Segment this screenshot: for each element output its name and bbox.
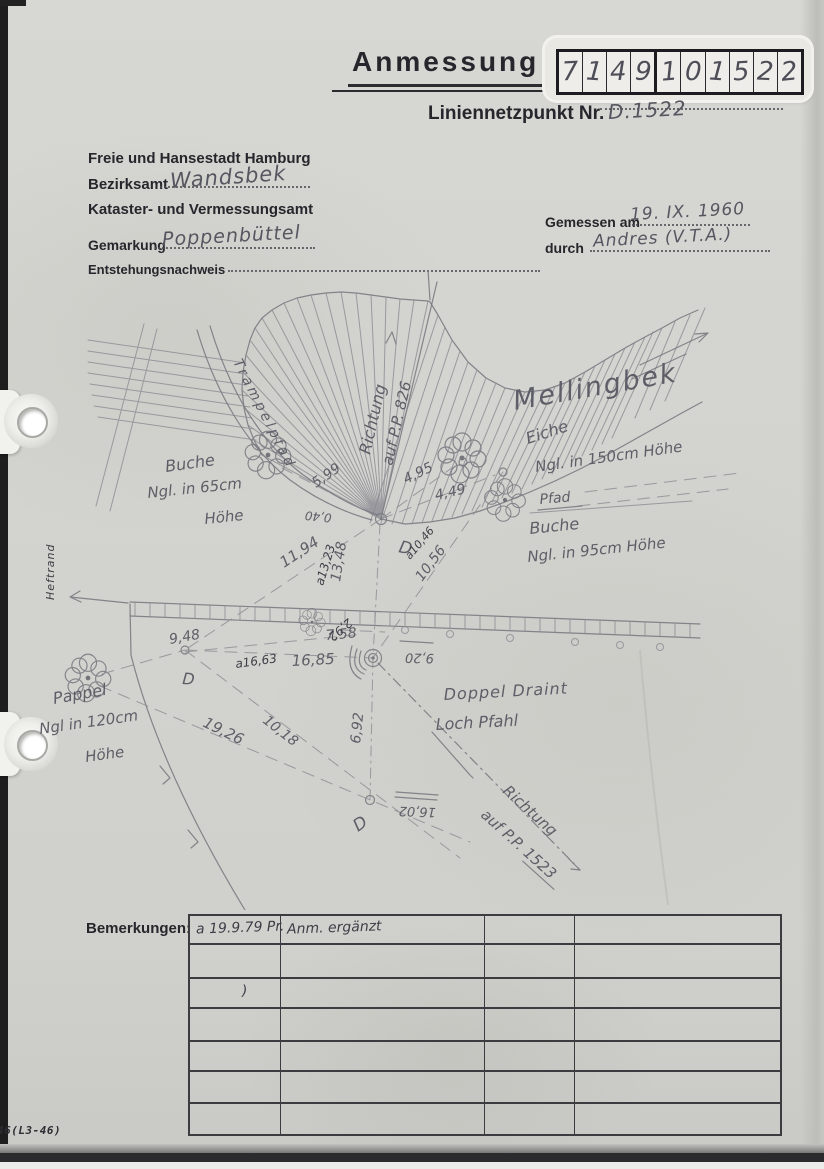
measure-1194: 11,94 [276, 533, 322, 571]
buche95-label-1: Buche [528, 514, 580, 538]
scan-edge-bottom [0, 1153, 824, 1162]
remarks-cell [575, 916, 780, 945]
remarks-cell [281, 1072, 485, 1104]
point-number-grid: 7149101522 [556, 49, 804, 95]
remarks-cell [575, 1072, 780, 1104]
point-number-cell: 7 [559, 52, 583, 92]
stream-band-hatching [370, 308, 705, 524]
scan-edge-right [800, 0, 824, 1169]
bezirksamt-label: Bezirksamt [88, 176, 168, 193]
buche65-label-3: Höhe [204, 506, 245, 528]
trampelpfad-label: Trampelpfad [229, 357, 298, 472]
measurement-lines [100, 467, 740, 889]
measure-692: 6,92 [348, 712, 367, 745]
remarks-cell [485, 1042, 575, 1072]
remarks-cell [190, 1009, 281, 1042]
eiche150-label-2: Ngl. in 150cm Höhe [534, 437, 683, 475]
gemessen-am-label: Gemessen am [545, 214, 640, 230]
heftrand-label: Heftrand [44, 544, 57, 600]
point-number-cell: 9 [631, 52, 657, 92]
remarks-cell [575, 945, 780, 979]
point-number-cell: 2 [754, 52, 778, 92]
remarks-cell: Anm. ergänzt [281, 916, 485, 945]
point-label-1: Doppel Draint [443, 679, 568, 704]
measure-1018: 10,18 [260, 713, 302, 750]
page-title: Anmessung [352, 46, 539, 78]
remarks-cell [281, 945, 485, 979]
form-code: 46(L3-46) [0, 1124, 61, 1137]
remarks-cell [575, 1009, 780, 1042]
remarks-entry: ) [242, 983, 248, 999]
measure-040: 0,40 [304, 508, 332, 525]
remarks-cell [281, 1009, 485, 1042]
remarks-cell [190, 1104, 281, 1134]
buche65-label-1: Buche [164, 450, 216, 476]
scan-edge-left [0, 0, 8, 1169]
buche65-label-2: Ngl. in 65cm [147, 474, 243, 502]
embankment-band [70, 591, 700, 910]
buche95-label-2: Ngl. in 95cm Höhe [527, 534, 667, 566]
remarks-cell [575, 1042, 780, 1072]
point-label-2: Loch Pfahl [435, 711, 519, 734]
point-number-cell: 5 [730, 52, 754, 92]
point-number-sticker: 7149101522 [545, 38, 811, 100]
gemarkung-label: Gemarkung [88, 237, 166, 253]
remarks-cell [485, 1072, 575, 1104]
remarks-cell [281, 979, 485, 1009]
measure-1685: 16,85 [291, 650, 335, 670]
scan-edge-top [0, 0, 26, 6]
point-number-cell: 4 [607, 52, 631, 92]
remarks-cell [281, 1104, 485, 1134]
remarks-cell [575, 1104, 780, 1134]
pen-note-1663: a16,63 [234, 651, 277, 671]
scan-edge-bottom-white [0, 1162, 824, 1169]
point-number-cell: 2 [778, 52, 801, 92]
remarks-cell [485, 916, 575, 945]
pappel120-label-2: Ngl in 120cm [40, 706, 139, 738]
durch-label: durch [545, 240, 584, 256]
pappel120-label-3: Höhe [84, 743, 125, 766]
agency-line3: Kataster- und Vermessungsamt [88, 201, 313, 218]
remarks-cell [190, 1042, 281, 1072]
bemerkungen-label: Bemerkungen: [86, 920, 191, 937]
remarks-entry: Anm. ergänzt [287, 918, 382, 937]
paper-crease [640, 650, 668, 905]
measure-920: 9,20 [405, 649, 434, 665]
measure-1926: 19,26 [200, 713, 246, 748]
measure-449: 4,49 [433, 481, 467, 504]
measure-1602: 16,02 [398, 803, 436, 819]
d-mark-2: D [182, 669, 196, 689]
title-underline [348, 84, 560, 87]
remarks-cell [190, 945, 281, 979]
remarks-cell [190, 1072, 281, 1104]
pappel120-label-1: Pappel [51, 680, 108, 708]
remarks-cell [485, 1104, 575, 1134]
remarks-cell [485, 945, 575, 979]
point-number-cell: 1 [583, 52, 607, 92]
remarks-cell: a 19.9.79 Pr. [190, 916, 281, 945]
point-number-cell: 1 [657, 52, 681, 92]
tree-buche95-symbol [485, 479, 526, 522]
pfad-label: Pfad [539, 489, 571, 508]
title-underline-2 [332, 90, 564, 92]
point-number-cell: 0 [681, 52, 705, 92]
point-number-cell: 1 [706, 52, 730, 92]
remarks-cell [575, 979, 780, 1009]
remarks-entry: a 19.9.79 Pr. [196, 918, 285, 937]
gemessen-am-value: 19. IX. 1960 [630, 199, 746, 225]
survey-sketch: Mellingbek Richtung auf P.P. 826 Trampel… [40, 270, 780, 910]
remarks-cell [281, 1042, 485, 1072]
tree-small-symbol [299, 608, 325, 636]
measure-948: 9,48 [168, 627, 202, 648]
d-mark-3: D [349, 812, 371, 836]
remarks-cell [485, 979, 575, 1009]
scanned-survey-form: Anmessung 7149101522 Liniennetzpunkt Nr.… [0, 0, 824, 1169]
liniennetzpunkt-value: D.1522 [607, 96, 687, 124]
remarks-cell: ) [190, 979, 281, 1009]
remarks-table: a 19.9.79 Pr.Anm. ergänzt) [188, 914, 782, 1136]
liniennetzpunkt-label: Liniennetzpunkt Nr. [428, 103, 604, 125]
remarks-cell [485, 1009, 575, 1042]
